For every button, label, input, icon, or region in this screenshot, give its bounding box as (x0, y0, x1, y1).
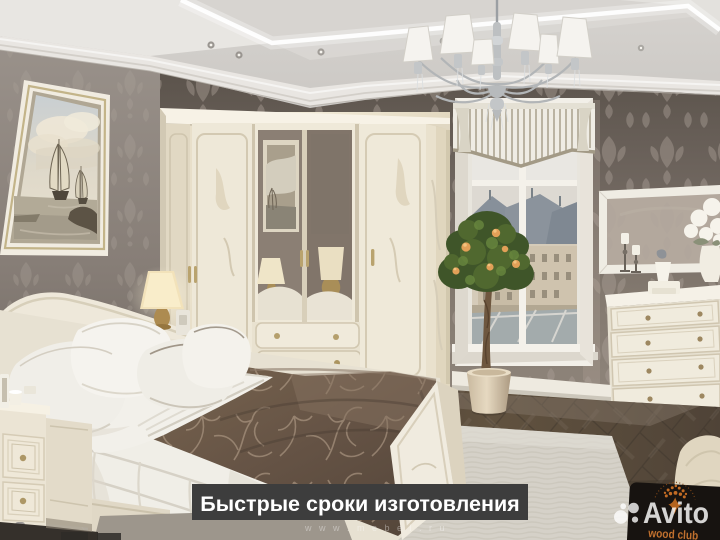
svg-text:Avito: Avito (643, 497, 709, 530)
svg-text:Быстрые сроки изготовления: Быстрые сроки изготовления (200, 492, 519, 516)
svg-text:w w w . m e b e l . r u: w w w . m e b e l . r u (304, 523, 447, 533)
